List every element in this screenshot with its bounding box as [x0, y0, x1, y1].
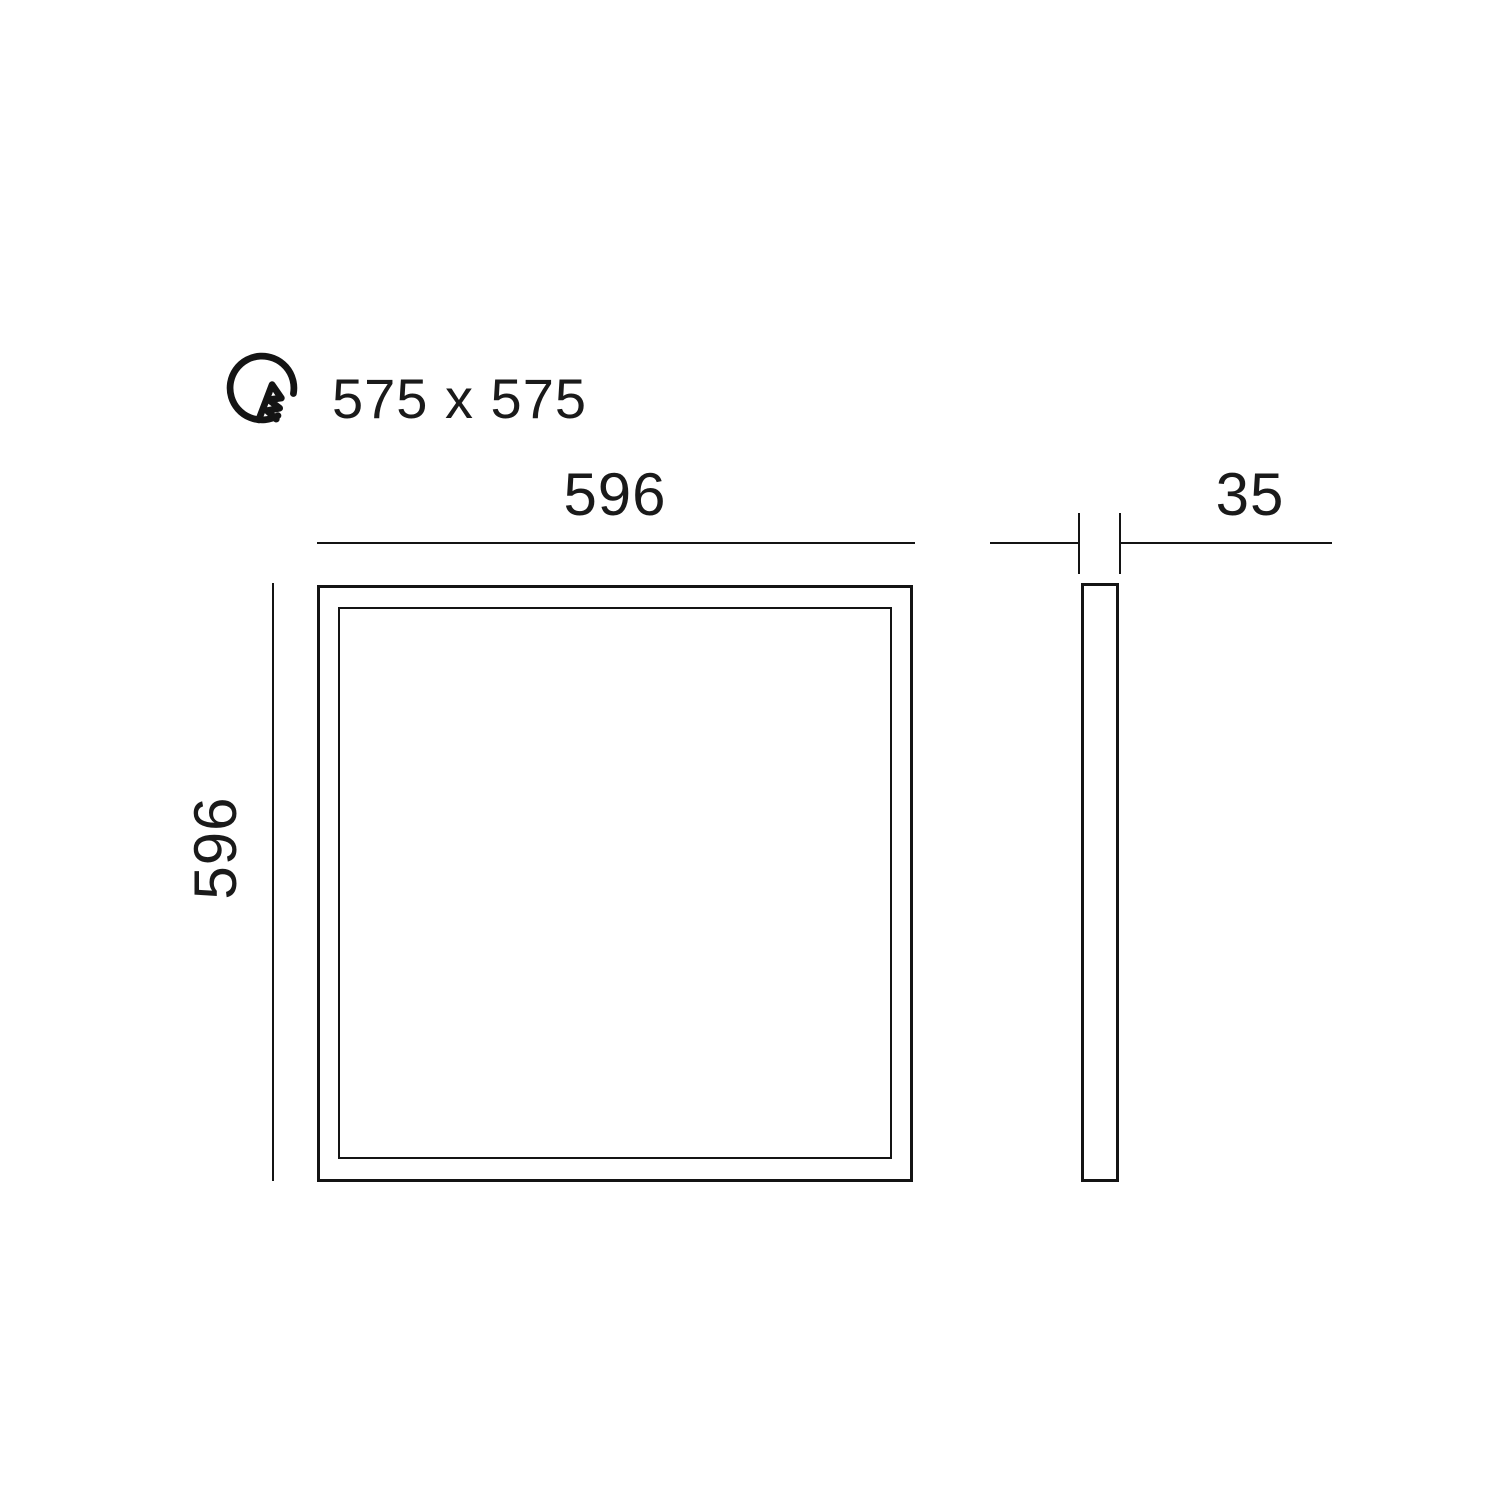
side-thickness-label: 35 — [1160, 465, 1340, 525]
panel-side-view — [1081, 583, 1119, 1182]
side-thickness-dimline-left — [990, 542, 1079, 544]
front-view-height-label: 596 — [186, 788, 246, 908]
cutout-icon — [220, 346, 304, 430]
panel-inner-frame — [338, 607, 892, 1159]
front-view-height-dimline — [272, 583, 274, 1181]
diagram-canvas: alasans.rs 575 x 575 596 596 35 — [0, 0, 1500, 1500]
side-thickness-tick-right — [1119, 513, 1121, 574]
side-thickness-tick-left — [1078, 513, 1080, 574]
front-view-width-dimline — [317, 542, 915, 544]
front-view-width-label: 596 — [317, 465, 913, 525]
cutout-dimension-label: 575 x 575 — [332, 371, 587, 427]
side-thickness-dimline-right — [1121, 542, 1332, 544]
